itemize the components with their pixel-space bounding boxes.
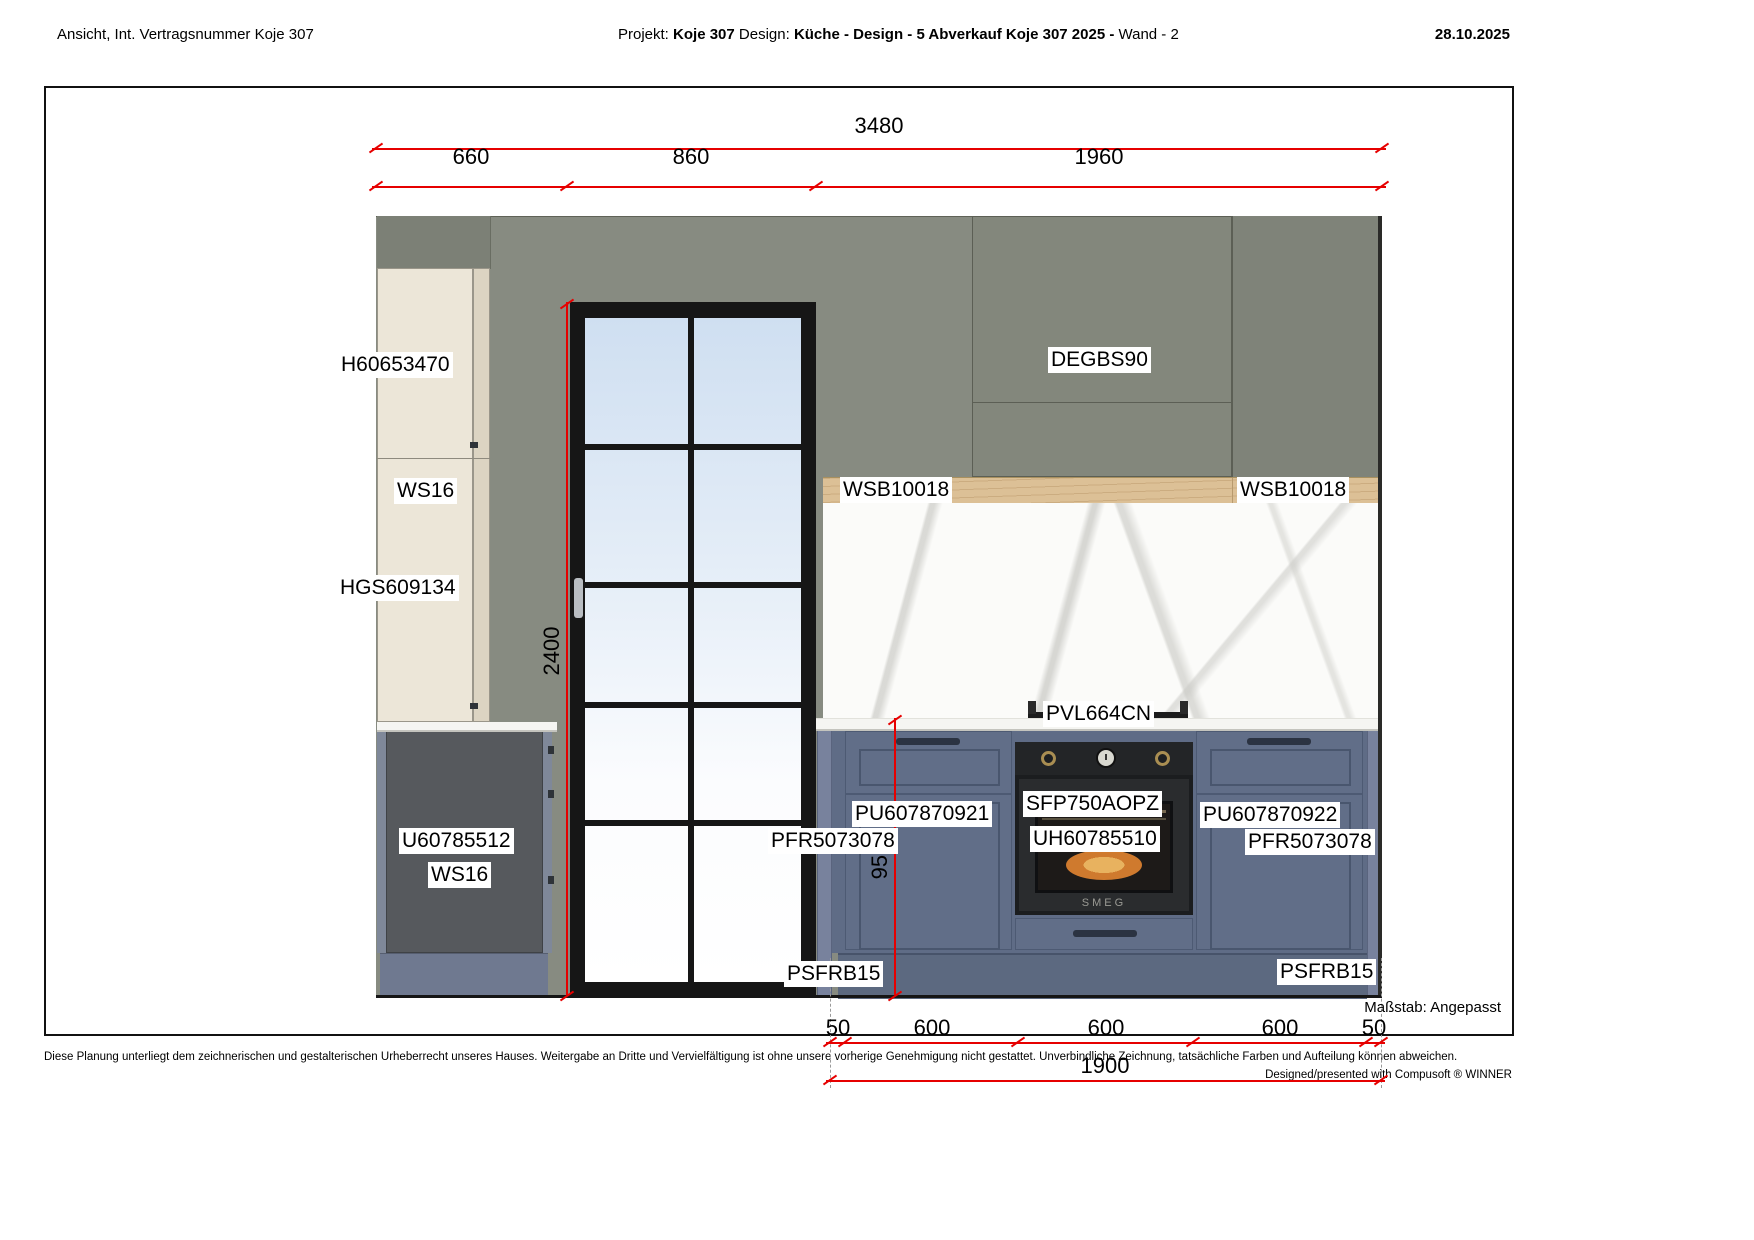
hinge-icon — [548, 876, 554, 884]
label-wall-unit-right: DEGBS90 — [1048, 347, 1151, 373]
wall-reference: Wand - 2 — [1119, 26, 1179, 43]
wall-cabinet-filler — [1232, 216, 1381, 477]
footer-copyright: Diese Planung unterliegt dem zeichnerisc… — [44, 1051, 1457, 1063]
drawer-handle — [896, 738, 960, 745]
label-plinth-left: PSFRB15 — [784, 961, 883, 987]
dim-total-width: 3480 — [855, 114, 904, 138]
design-name: Küche - Design - 5 Abverkauf Koje 307 20… — [794, 26, 1114, 43]
pizza-in-oven — [1066, 850, 1142, 880]
dim-bottom-total: 1900 — [1081, 1054, 1130, 1078]
label-frame-left: PFR5073078 — [768, 828, 898, 854]
label-oven-housing: UH60785510 — [1030, 826, 1160, 852]
hinge-icon — [470, 442, 478, 448]
label-plinth-right: PSFRB15 — [1277, 959, 1376, 985]
oven-base-drawer — [1015, 918, 1193, 950]
dim-seg-left: 660 — [453, 145, 490, 169]
door-mullion-vertical — [688, 318, 694, 982]
dim-line-bottom-segments — [826, 1042, 1385, 1044]
drawer-door-gap — [1197, 793, 1362, 795]
dim-door-height: 2400 — [539, 627, 565, 676]
label-base-left-unit: U60785512 — [399, 828, 514, 854]
marble-backsplash — [823, 503, 1380, 718]
oven-rack — [1042, 818, 1166, 820]
view-title-text: Ansicht, Int. Vertragsnummer Koje 307 — [57, 26, 314, 43]
design-label: Design: — [739, 26, 790, 43]
label-base-run-right: PU607870922 — [1200, 802, 1340, 828]
drawer-front-panel — [859, 749, 1000, 786]
door-handle — [574, 578, 583, 618]
drawer-front-panel — [1210, 749, 1351, 786]
door-mullion-horizontal — [585, 444, 801, 450]
door-mullion-horizontal — [585, 582, 801, 588]
shelf-joint — [1232, 478, 1233, 504]
dim-bottom-50-right: 50 — [1362, 1016, 1386, 1040]
glass-door — [570, 302, 816, 997]
base-left-plinth — [380, 953, 548, 998]
label-shelf-left: WSB10018 — [840, 477, 952, 503]
oven-clock-icon — [1096, 748, 1116, 768]
dim-seg-door: 860 — [673, 145, 710, 169]
planning-document-page: Ansicht, Int. Vertragsnummer Koje 307 Pr… — [0, 0, 1754, 1240]
label-base-run-left: PU607870921 — [852, 801, 992, 827]
wall-right-corner — [1378, 216, 1382, 997]
oven-knob-icon — [1155, 751, 1170, 766]
dim-line-segments — [372, 186, 1386, 188]
dim-seg-right: 1960 — [1075, 145, 1124, 169]
tall-cabinet-side-panel — [473, 268, 490, 722]
door-mullion-horizontal — [585, 820, 801, 826]
drawer-handle — [1073, 930, 1137, 937]
oven-knob-icon — [1041, 751, 1056, 766]
oven-control-panel — [1015, 742, 1193, 775]
oven-brand-text: SMEG — [1019, 897, 1189, 909]
tall-cabinet-door-split — [377, 458, 490, 459]
label-shelf-right: WSB10018 — [1237, 477, 1349, 503]
dim-line-bottom-total — [826, 1080, 1385, 1082]
dim-bottom-600-2: 600 — [1088, 1016, 1125, 1040]
label-oven-model: SFP750AOPZ — [1023, 791, 1162, 817]
floor-line — [376, 995, 1382, 998]
label-side-panel-base: WS16 — [428, 862, 491, 888]
label-hob: PVL664CN — [1043, 701, 1154, 727]
run-side-panel-left — [817, 728, 832, 997]
label-tall-lower-unit: HGS609134 — [337, 575, 459, 601]
drawer-handle — [1247, 738, 1311, 745]
dim-line-total — [372, 148, 1386, 150]
dim-line-door-height — [566, 302, 568, 995]
date-text: 28.10.2025 — [1435, 26, 1510, 43]
project-label: Projekt: — [618, 26, 669, 43]
dim-bottom-600-3: 600 — [1262, 1016, 1299, 1040]
hinge-icon — [470, 703, 478, 709]
label-tall-upper-unit: H60653470 — [338, 352, 453, 378]
drawer-door-gap — [846, 793, 1011, 795]
header-date: 28.10.2025 — [1435, 26, 1510, 43]
wall-cabinet-door-split — [973, 402, 1231, 403]
header-project-line: Projekt: Koje 307 Design: Küche - Design… — [618, 26, 1179, 43]
hob-end-bracket — [1180, 701, 1188, 714]
label-frame-right: PFR5073078 — [1245, 829, 1375, 855]
dim-bottom-600-1: 600 — [914, 1016, 951, 1040]
worktop-left — [377, 722, 557, 732]
clock-hand — [1105, 754, 1107, 760]
hob-end-bracket — [1028, 701, 1036, 714]
label-side-panel-upper: WS16 — [394, 478, 457, 504]
base-left-side-strip — [377, 730, 386, 953]
soffit-panel — [377, 216, 491, 269]
header-view-title: Ansicht, Int. Vertragsnummer Koje 307 — [57, 26, 314, 43]
hinge-icon — [548, 790, 554, 798]
dim-line-worktop-height — [894, 718, 896, 995]
base-right-side-panel — [543, 730, 552, 953]
door-mullion-horizontal — [585, 702, 801, 708]
scale-note: Maßstab: Angepasst — [1364, 999, 1501, 1016]
hinge-icon — [548, 746, 554, 754]
dim-bottom-50-left: 50 — [826, 1016, 850, 1040]
project-name: Koje 307 — [673, 26, 735, 43]
